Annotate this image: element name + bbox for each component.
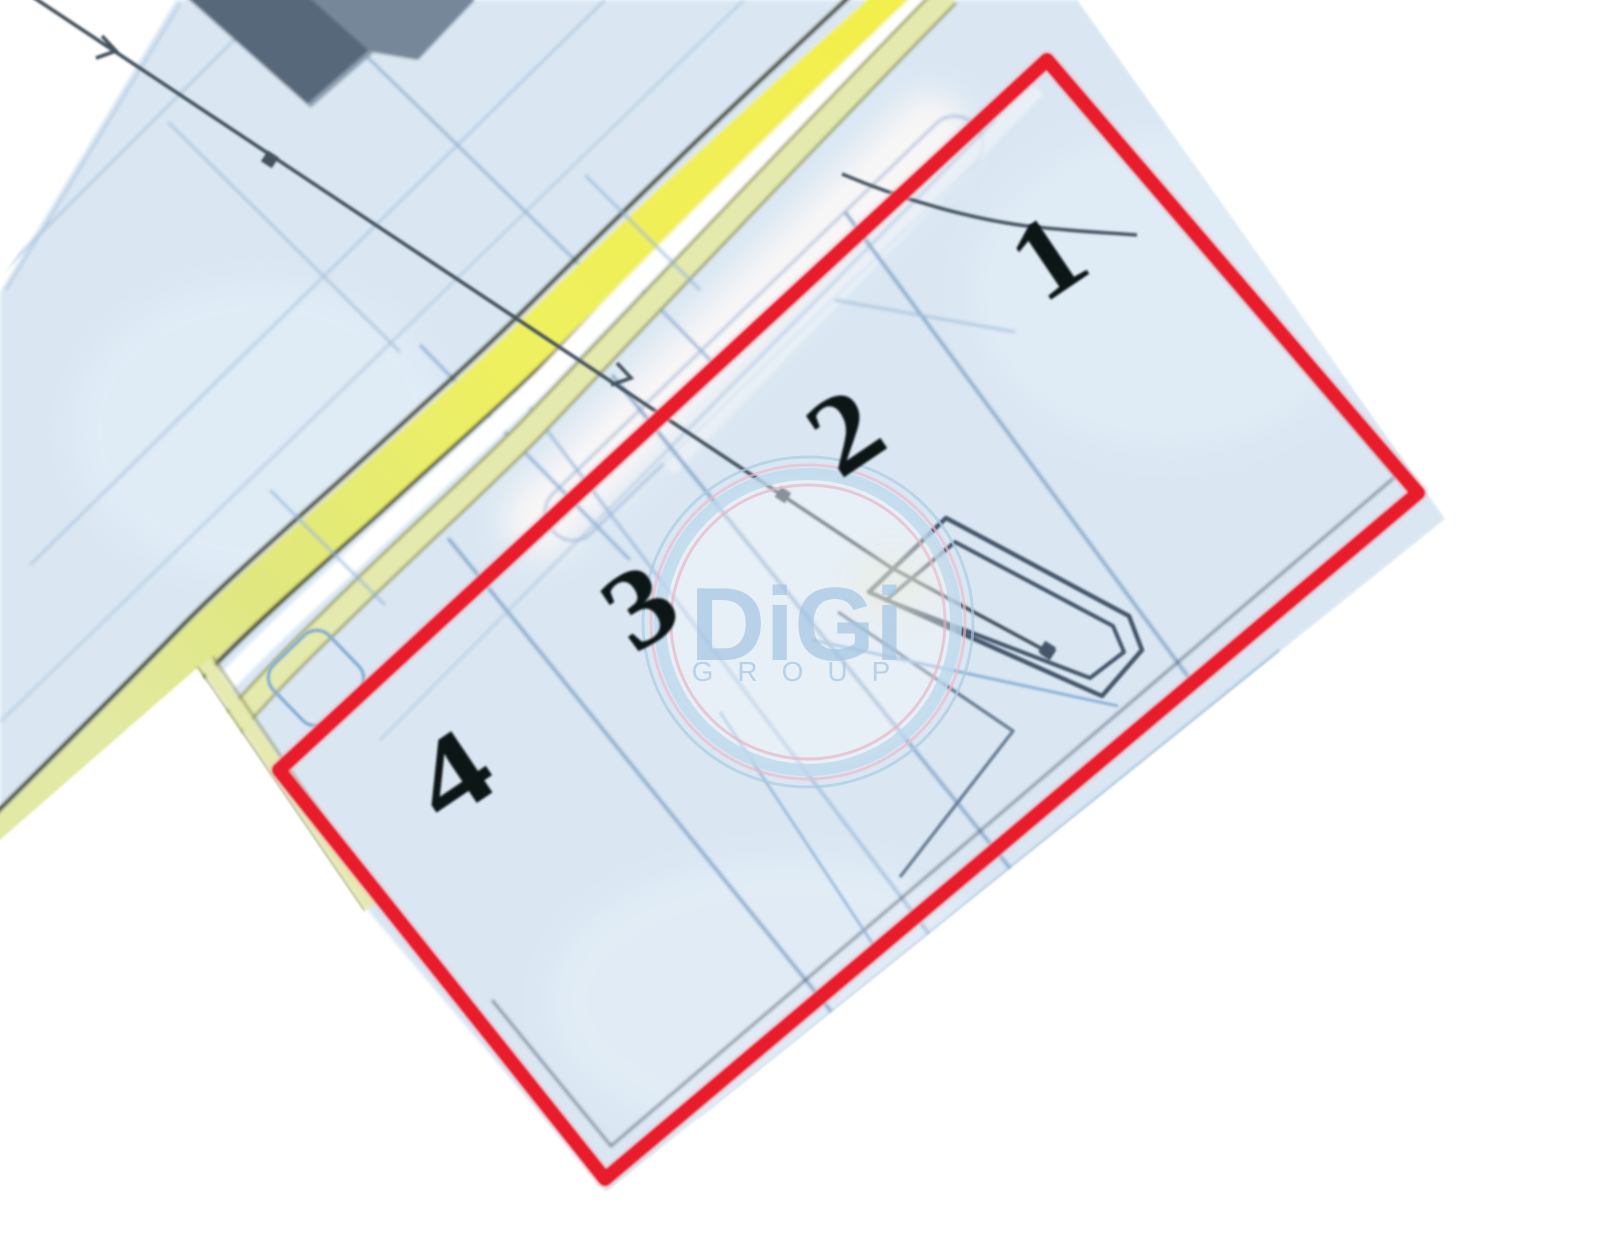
svg-text:GROUP: GROUP <box>692 656 915 687</box>
